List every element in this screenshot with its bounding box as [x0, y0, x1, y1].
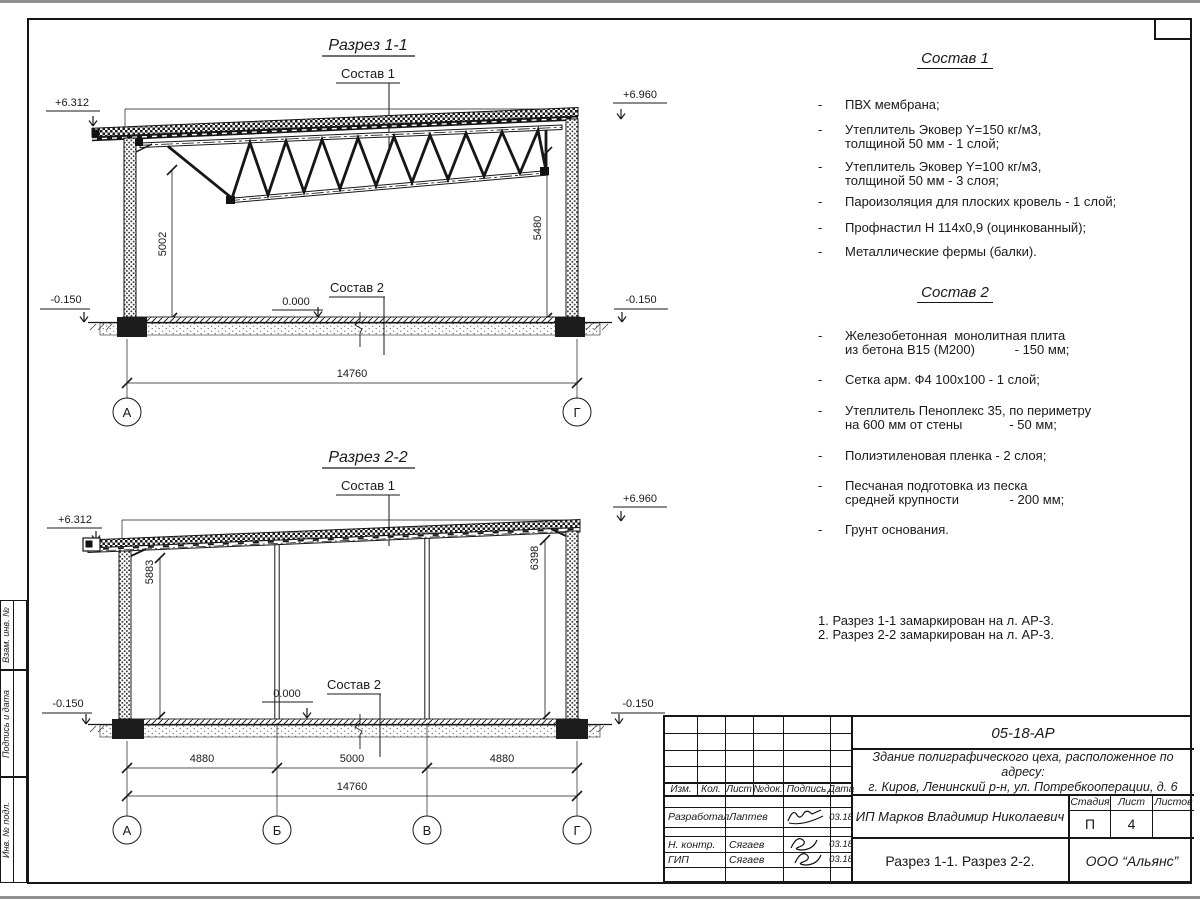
svg-text:Б: Б: [273, 823, 282, 838]
s1-wall-right: [566, 119, 578, 318]
svg-text:14760: 14760: [337, 781, 368, 793]
row-nk-date: 03.18: [830, 837, 852, 852]
s2-floor: [88, 714, 612, 749]
s2-grid-bubble-v: В: [413, 816, 441, 844]
s2-callout-floor: Состав 2: [327, 677, 381, 757]
s1-grid-bubble-g: Г: [563, 398, 591, 426]
s1-truss: [140, 125, 562, 204]
svg-text:4880: 4880: [190, 753, 214, 765]
row-dev-name: Лаптев: [726, 808, 786, 826]
s2-level-zero: 0.000: [262, 688, 313, 718]
svg-text:+6.312: +6.312: [55, 97, 89, 109]
sheet-name: Разрез 1-1. Разрез 2-2.: [852, 839, 1068, 883]
page-bottom-edge: [0, 896, 1200, 899]
col-ndok: №док.: [753, 783, 783, 795]
col-izm: Изм.: [665, 783, 697, 795]
list-item: -Песчаная подготовка из песка средней кр…: [818, 479, 1193, 507]
svg-text:-0.150: -0.150: [50, 294, 81, 306]
col-data: Дата: [830, 783, 852, 795]
s2-wall-left: [119, 551, 131, 719]
svg-text:14760: 14760: [337, 368, 368, 380]
drawing-sheet: Взам. инв. № Подпись и дата Инв. № подл.: [0, 0, 1200, 900]
s1-level-minus-right: -0.150: [614, 294, 668, 322]
s2-wall-right: [566, 531, 578, 719]
doc-number: 05-18-АР: [852, 719, 1194, 747]
list-item: -Утеплитель Пеноплекс 35, по периметру н…: [818, 404, 1193, 432]
row-gip-date: 03.18: [830, 852, 852, 867]
s1-level-minus-left: -0.150: [40, 294, 90, 322]
project-description: Здание полиграфического цеха, расположен…: [857, 751, 1189, 793]
client-name: ИП Марков Владимир Николаевич: [852, 796, 1068, 836]
s2-grid-bubble-a: А: [113, 816, 141, 844]
s2-grid-bubble-b: Б: [263, 816, 291, 844]
s1-callout-roof: Состав 1: [341, 66, 395, 81]
s1-wall-left: [124, 138, 136, 318]
col-kol: Кол.: [697, 783, 725, 795]
svg-text:0.000: 0.000: [282, 296, 310, 308]
svg-text:В: В: [423, 823, 432, 838]
s2-grid-bubble-g: Г: [563, 816, 591, 844]
s2-level-left: +6.312: [47, 514, 102, 541]
s2-level-minus-left: -0.150: [42, 698, 92, 724]
s1-level-zero: 0.000: [272, 296, 323, 317]
svg-text:А: А: [123, 405, 132, 420]
svg-text:5000: 5000: [340, 753, 364, 765]
svg-text:0.000: 0.000: [273, 688, 301, 700]
svg-text:Г: Г: [573, 405, 580, 420]
sections-drawing: Разрез 1-1 Состав 1 +6.312 +6.960: [0, 0, 690, 860]
signature-laptev: [785, 806, 829, 826]
s1-level-right: +6.960: [613, 89, 667, 119]
section2-drawing: Разрез 2-2 Состав 1 +6.312 +6.960: [42, 449, 667, 844]
list-item: -Сетка арм. Ф4 100х100 - 1 слой;: [818, 373, 1193, 387]
svg-text:4880: 4880: [490, 753, 514, 765]
col-list: Лист: [725, 783, 753, 795]
sheets-label: Листов: [1153, 795, 1194, 809]
section1-title: Разрез 1-1: [328, 37, 407, 54]
svg-text:-0.150: -0.150: [622, 698, 653, 710]
s1-dim-height-left: 5002: [157, 165, 177, 323]
row-nk-name: Сягаев: [726, 837, 786, 852]
sheet-label: Лист: [1111, 795, 1152, 809]
title-block: Изм. Кол. Лист №док. Подпись Дата Разраб…: [663, 715, 1192, 883]
s1-grid-bubble-a: А: [113, 398, 141, 426]
row-nk-role: Н. контр.: [665, 837, 728, 852]
row-dev-date: 03.18: [830, 808, 852, 826]
s2-dim-height-right: 6398: [529, 535, 550, 722]
sheets-total: [1153, 811, 1194, 836]
svg-text:+6.960: +6.960: [623, 493, 657, 505]
list-item: -Грунт основания.: [818, 523, 1193, 537]
s2-level-right: +6.960: [613, 493, 667, 521]
col-podpis: Подпись: [783, 783, 830, 795]
signature-syagaev: [785, 834, 831, 868]
svg-text:+6.960: +6.960: [623, 89, 657, 101]
sheet-number: 4: [1111, 811, 1152, 836]
svg-text:А: А: [123, 823, 132, 838]
s1-floor: [88, 312, 612, 347]
svg-text:Состав 2: Состав 2: [327, 677, 381, 692]
s1-dim-total: 14760: [122, 339, 582, 398]
section1-drawing: Разрез 1-1 Состав 1 +6.312 +6.960: [40, 37, 668, 426]
stage-label: Стадия: [1070, 795, 1110, 809]
svg-text:Состав 2: Состав 2: [330, 280, 384, 295]
svg-text:-0.150: -0.150: [52, 698, 83, 710]
sostav2-list: -Железобетонная монолитная плита из бето…: [818, 0, 1193, 560]
note-2: 2. Разрез 2-2 замаркирован на л. АР-3.: [818, 628, 1054, 642]
row-gip-role: ГИП: [665, 852, 728, 867]
s2-callout-roof: Состав 1: [341, 478, 395, 493]
s1-roof-drip-edge: [92, 130, 100, 137]
svg-text:+6.312: +6.312: [58, 514, 92, 526]
row-dev-role: Разработал: [665, 808, 728, 826]
row-gip-name: Сягаев: [726, 852, 786, 867]
svg-text:-0.150: -0.150: [625, 294, 656, 306]
company-name: ООО “Альянс”: [1070, 839, 1194, 883]
s2-level-minus-right: -0.150: [611, 698, 665, 724]
s2-column-v: [425, 539, 429, 720]
svg-text:5002: 5002: [157, 232, 169, 256]
list-item: -Полиэтиленовая пленка - 2 слоя;: [818, 449, 1193, 463]
section2-title: Разрез 2-2: [328, 449, 407, 466]
list-item: -Железобетонная монолитная плита из бето…: [818, 329, 1193, 357]
note-1: 1. Разрез 1-1 замаркирован на л. АР-3.: [818, 614, 1054, 628]
s2-dim-height-left: 5883: [144, 553, 165, 722]
svg-text:6398: 6398: [529, 546, 541, 570]
svg-text:5480: 5480: [532, 216, 544, 240]
svg-text:5883: 5883: [144, 560, 156, 584]
s1-level-left: +6.312: [46, 97, 100, 126]
stage-value: П: [1070, 811, 1110, 836]
svg-text:Г: Г: [573, 823, 580, 838]
s2-roof: [83, 520, 580, 553]
